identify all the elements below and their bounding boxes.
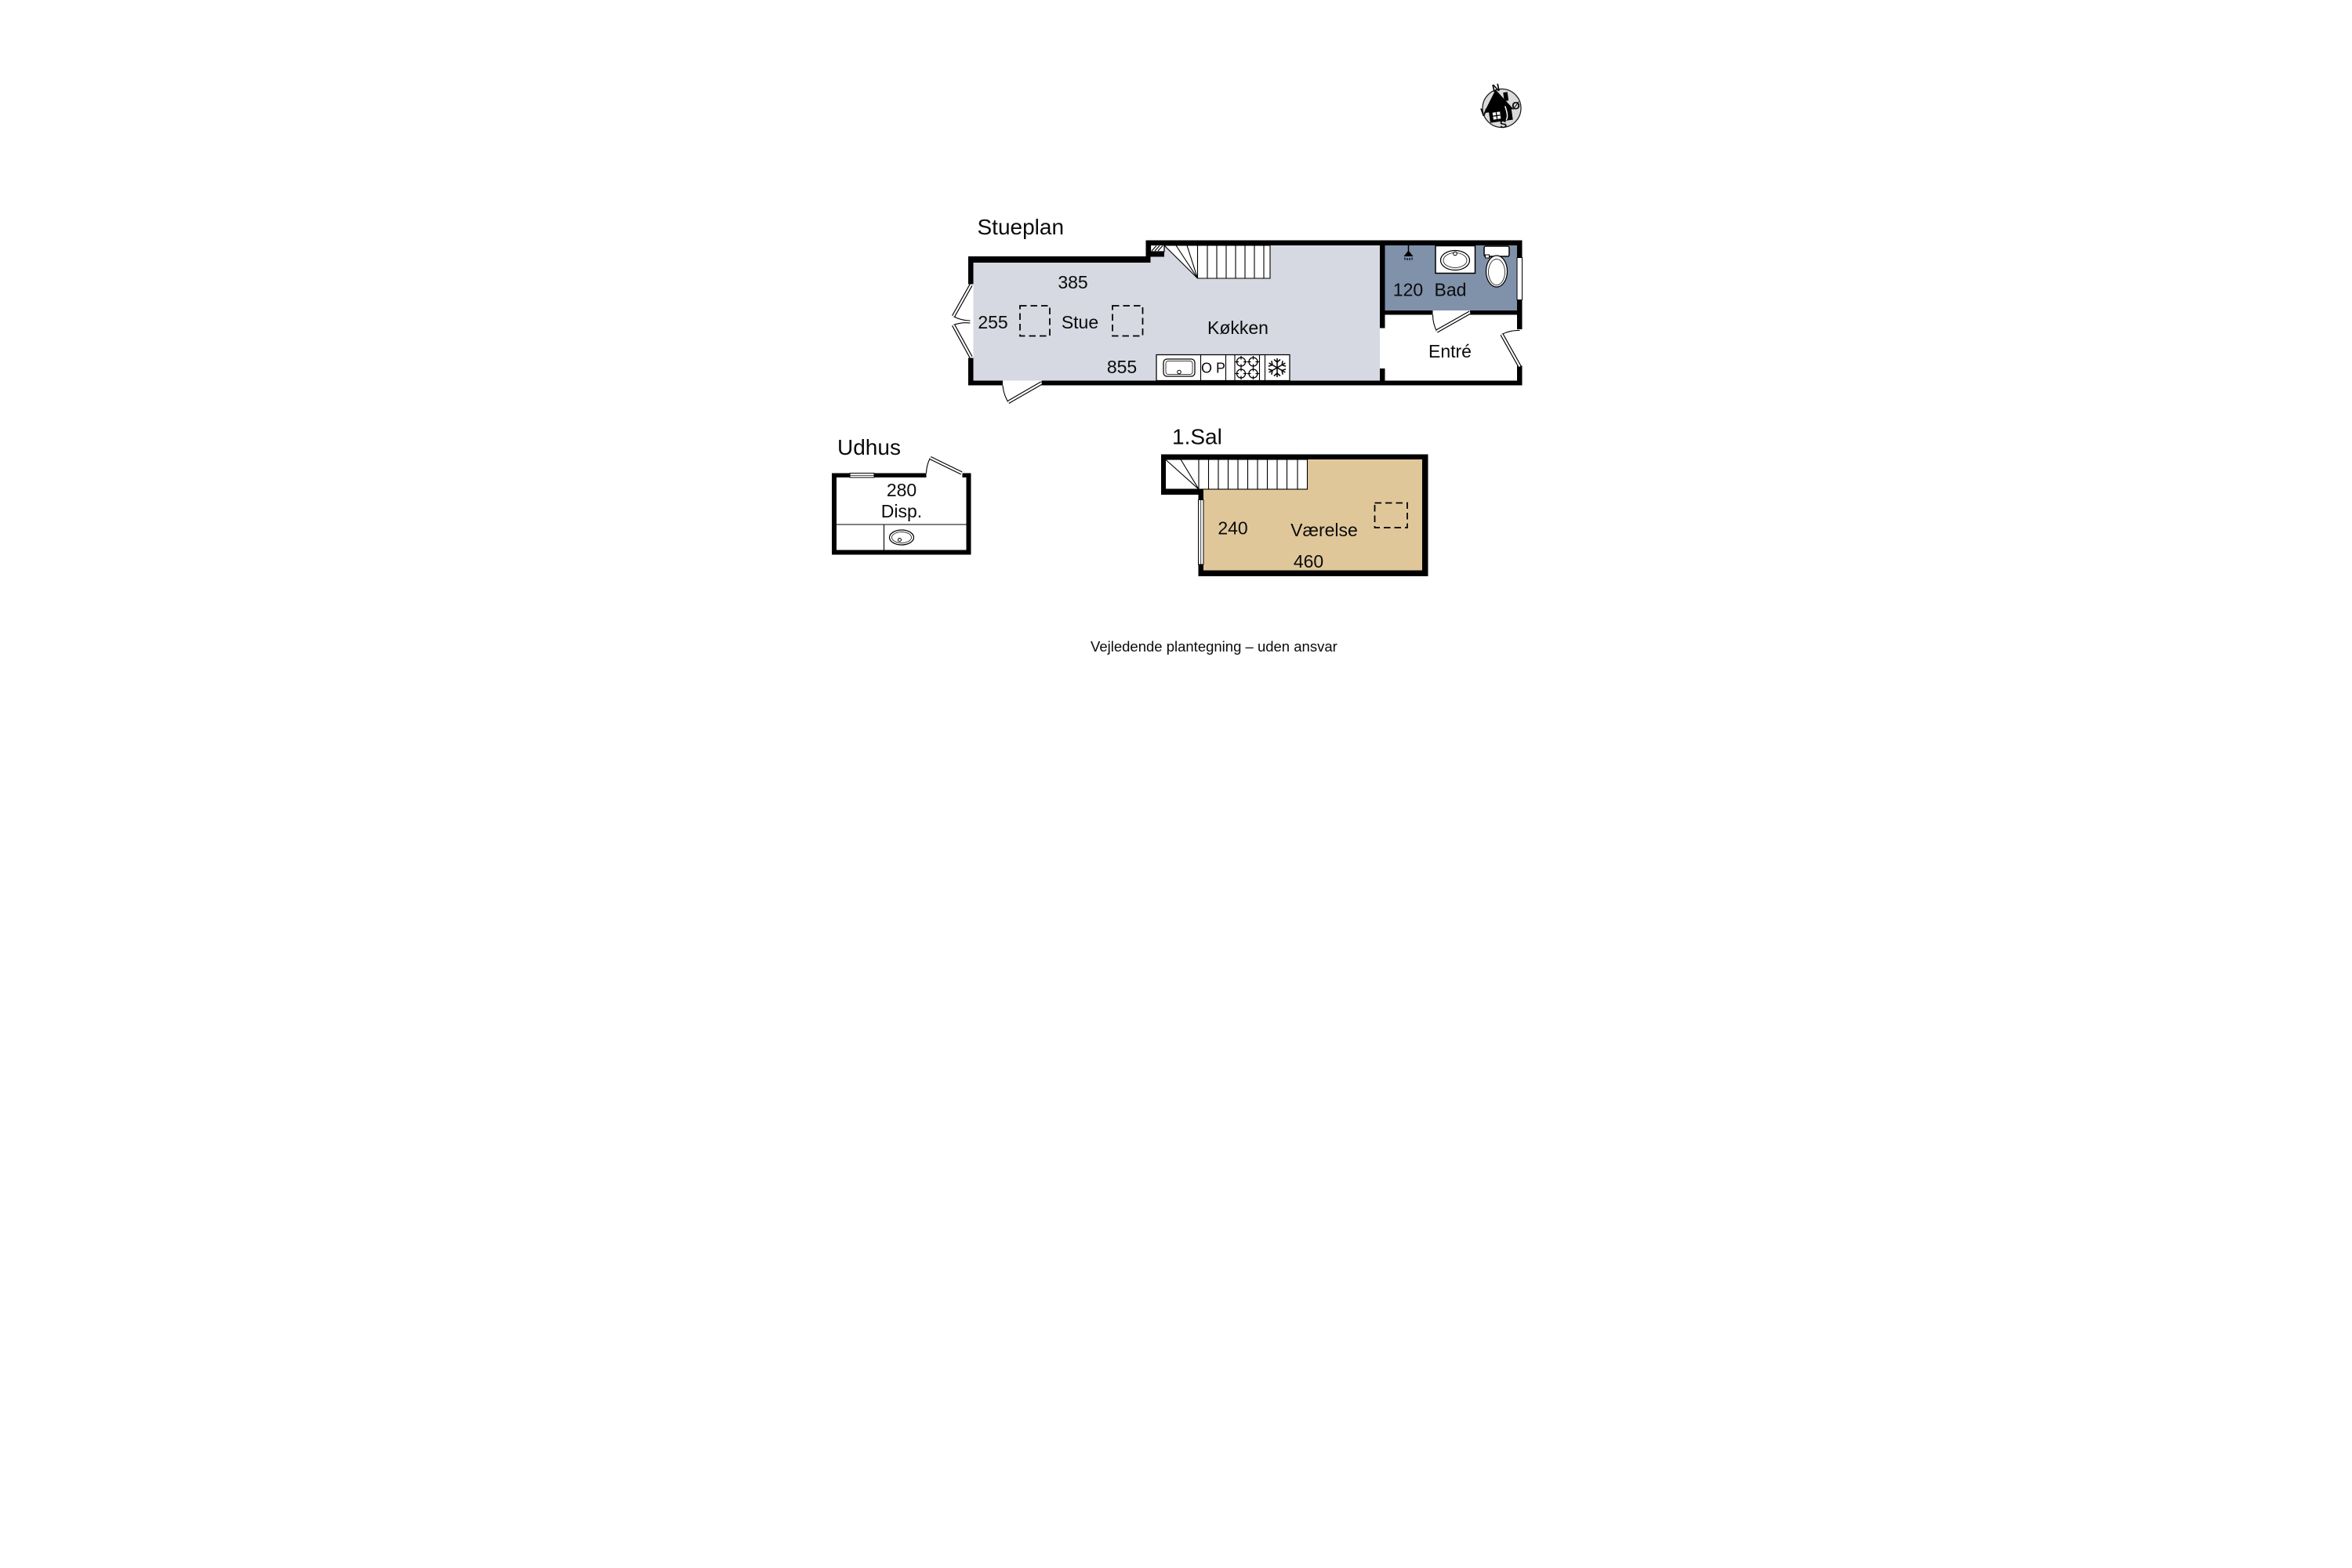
dim-385: 385 (1058, 272, 1087, 292)
room-label-bad: Bad (1435, 280, 1467, 300)
compass-east-label: Ø (1512, 100, 1520, 112)
dim-120: 120 (1393, 280, 1423, 300)
dim-460: 460 (1294, 551, 1323, 572)
kitchen-sink-icon (1163, 359, 1195, 376)
ground-floor-title: Stueplan (978, 215, 1065, 239)
toilet-icon (1484, 246, 1509, 287)
terrace-double-door (953, 285, 971, 358)
compass-rose: N Ø S V (1480, 82, 1521, 131)
outbuilding-plan: Udhus 280 Disp. (832, 435, 971, 555)
first-floor-plan: 1.Sal 240 Værelse 460 (1161, 425, 1428, 577)
first-floor-stairs-icon (1166, 459, 1308, 489)
outbuilding-sink-icon (890, 530, 914, 545)
outbuilding-title: Udhus (837, 435, 901, 459)
page: Stueplan (588, 0, 1764, 784)
floor-plan-canvas: Stueplan (588, 0, 1764, 784)
outbuilding-window (850, 474, 874, 478)
room-label-entre: Entré (1428, 341, 1472, 361)
dim-855: 855 (1107, 357, 1137, 377)
room-label-stue: Stue (1062, 312, 1098, 332)
dim-240: 240 (1218, 518, 1247, 539)
dim-280: 280 (887, 480, 916, 500)
first-floor-window (1199, 500, 1204, 565)
dishwasher-icon: O P (1201, 361, 1225, 376)
room-label-vaerelse: Værelse (1290, 520, 1358, 540)
outbuilding-door (927, 458, 962, 474)
first-floor-title: 1.Sal (1172, 425, 1222, 449)
chimney-icon (1151, 245, 1165, 257)
outbuilding-counter (837, 524, 967, 550)
disclaimer: Vejledende plantegning – uden ansvar (1091, 638, 1338, 655)
ground-floor-plan: Stueplan (953, 215, 1523, 402)
dim-255: 255 (978, 312, 1007, 332)
room-label-kokken: Køkken (1207, 318, 1269, 338)
living-room-exterior-door (1003, 383, 1042, 403)
bath-sink-icon (1436, 246, 1475, 274)
bathroom-window (1517, 258, 1523, 300)
compass-south-label: S (1499, 118, 1508, 131)
compass-west-label: V (1480, 107, 1487, 118)
room-label-disp: Disp. (881, 501, 922, 521)
kitchen-counter: O P (1156, 355, 1290, 381)
